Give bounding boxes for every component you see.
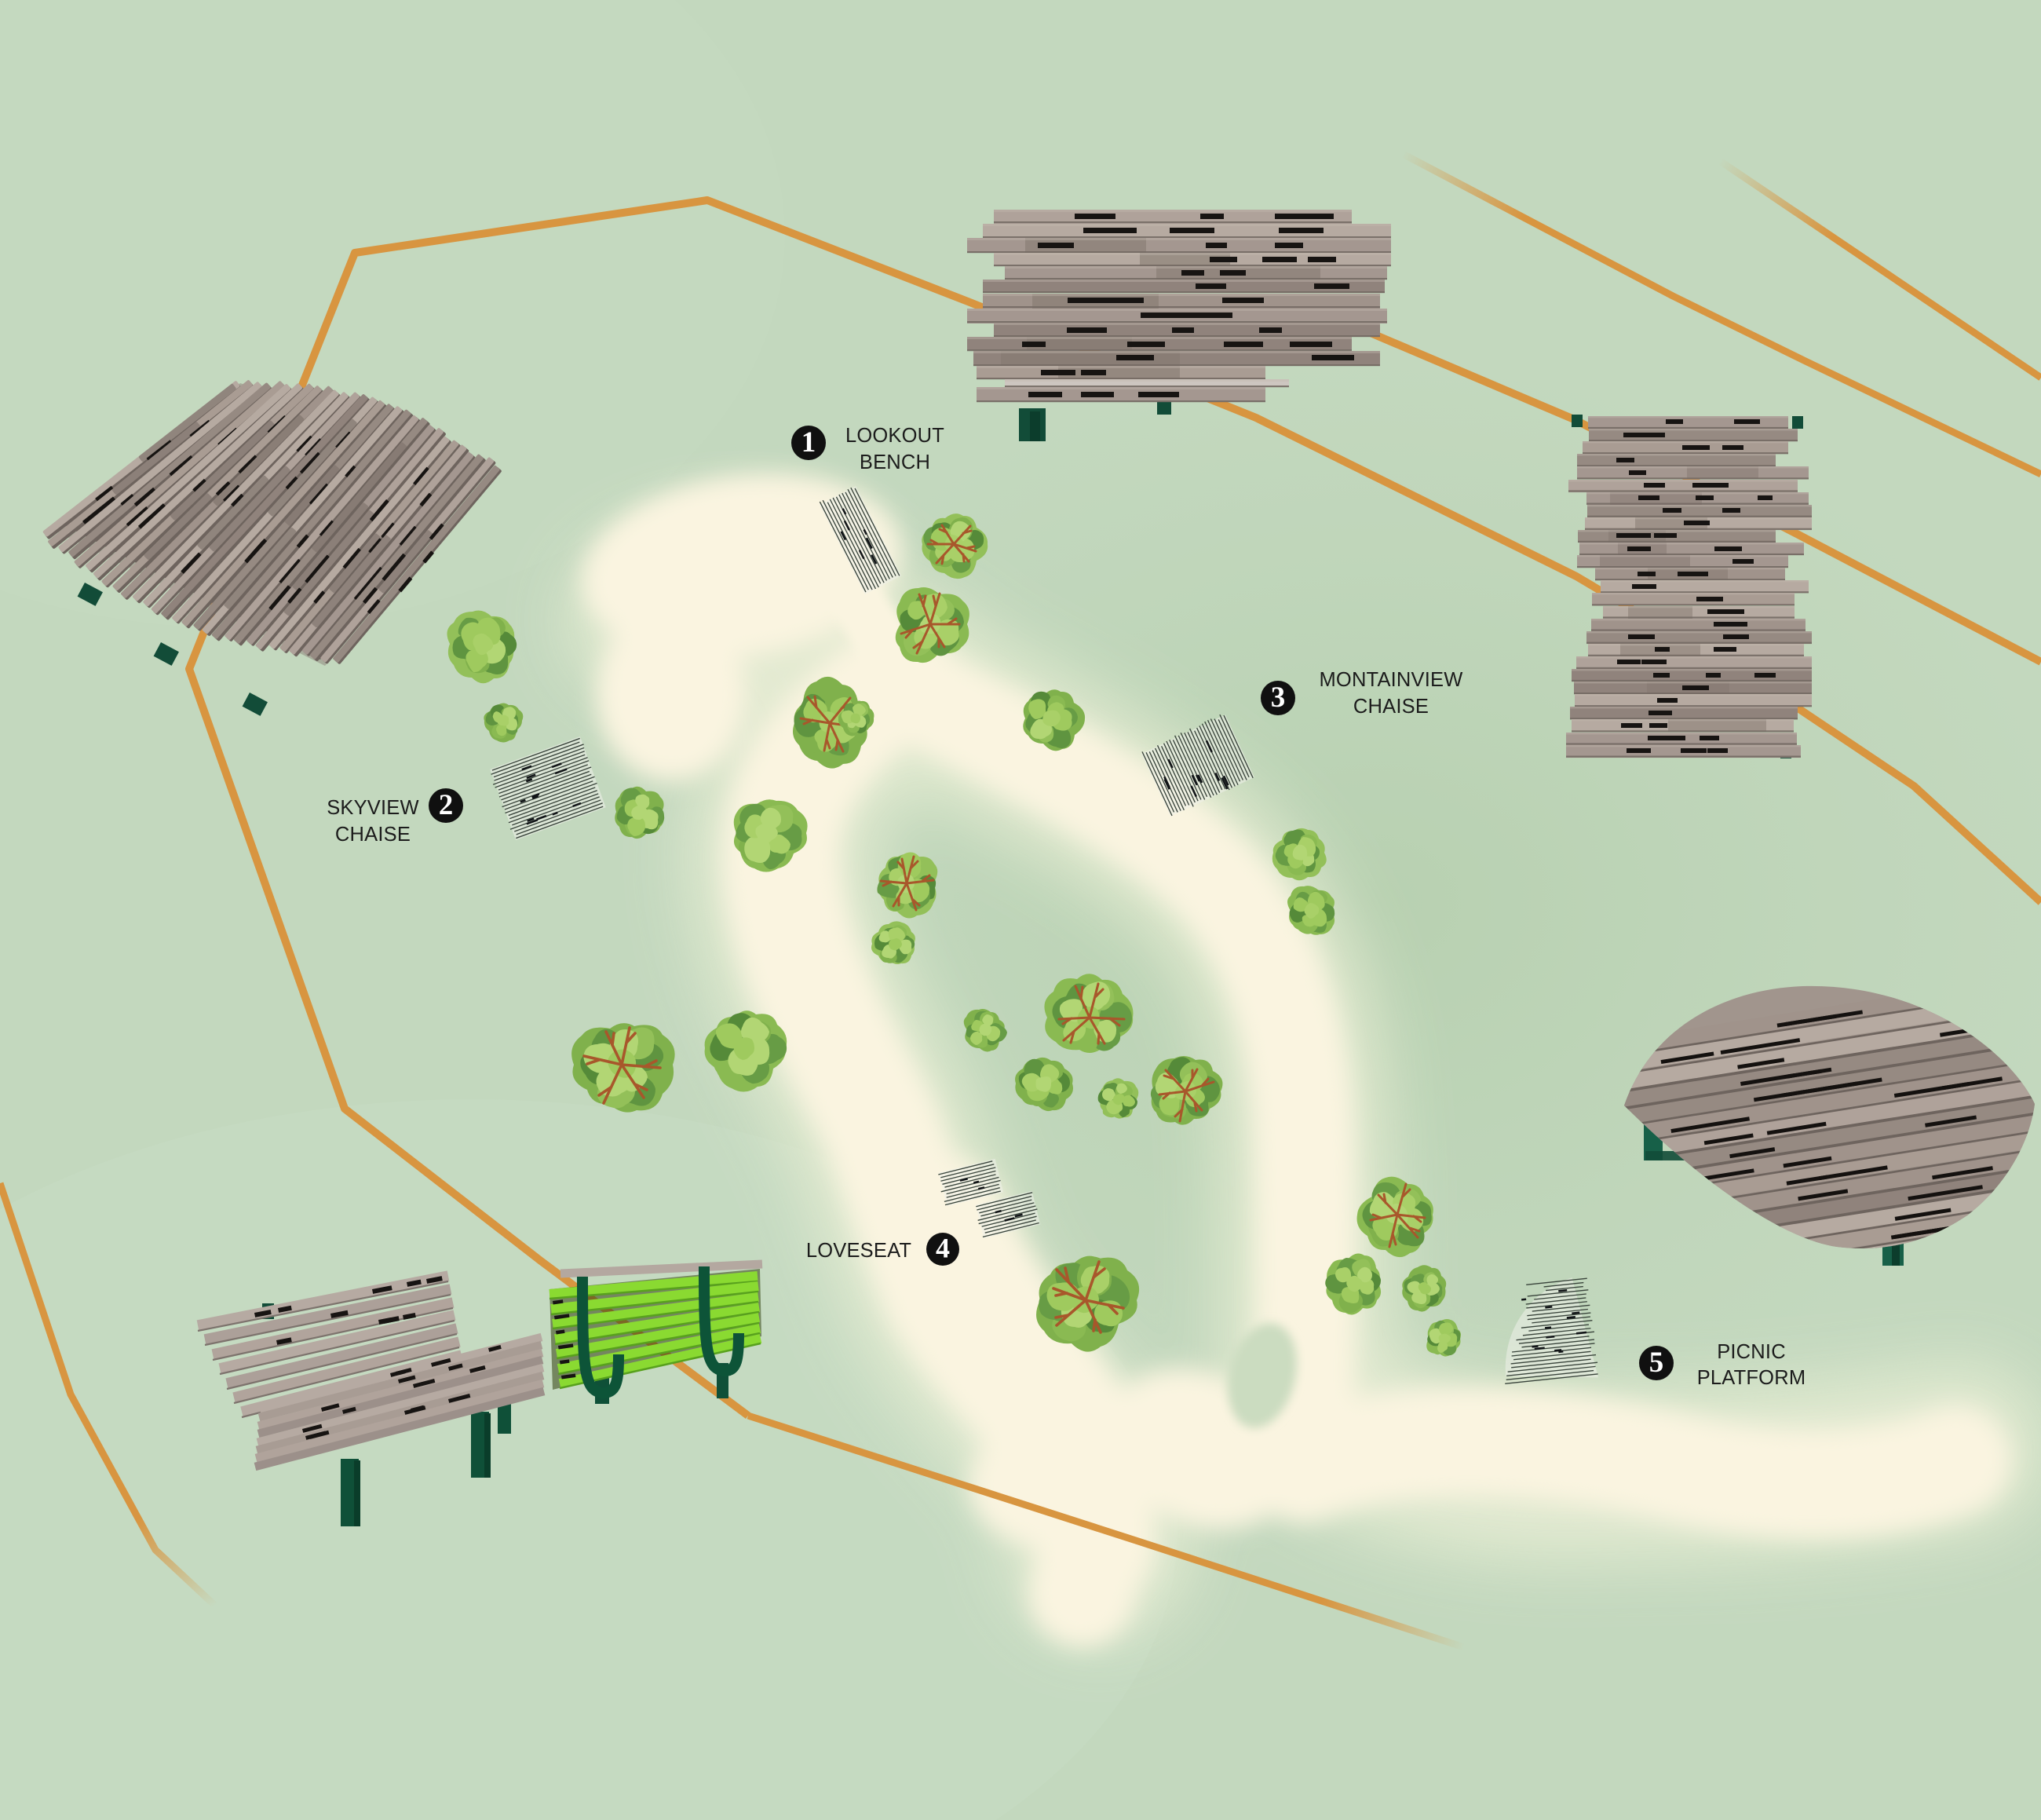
svg-text:BENCH: BENCH [860,451,930,473]
svg-text:LOOKOUT: LOOKOUT [845,425,944,447]
svg-text:1: 1 [801,426,816,459]
svg-text:2: 2 [439,789,454,821]
svg-text:4: 4 [936,1233,950,1264]
svg-text:MONTAINVIEW: MONTAINVIEW [1319,669,1462,691]
svg-text:LOVESEAT: LOVESEAT [806,1240,911,1262]
svg-text:5: 5 [1649,1347,1664,1379]
svg-text:CHAISE: CHAISE [335,824,411,846]
svg-text:SKYVIEW: SKYVIEW [327,797,419,819]
svg-text:CHAISE: CHAISE [1353,696,1429,718]
svg-text:3: 3 [1271,682,1286,714]
svg-text:PLATFORM: PLATFORM [1697,1367,1806,1389]
svg-text:PICNIC: PICNIC [1717,1341,1786,1363]
